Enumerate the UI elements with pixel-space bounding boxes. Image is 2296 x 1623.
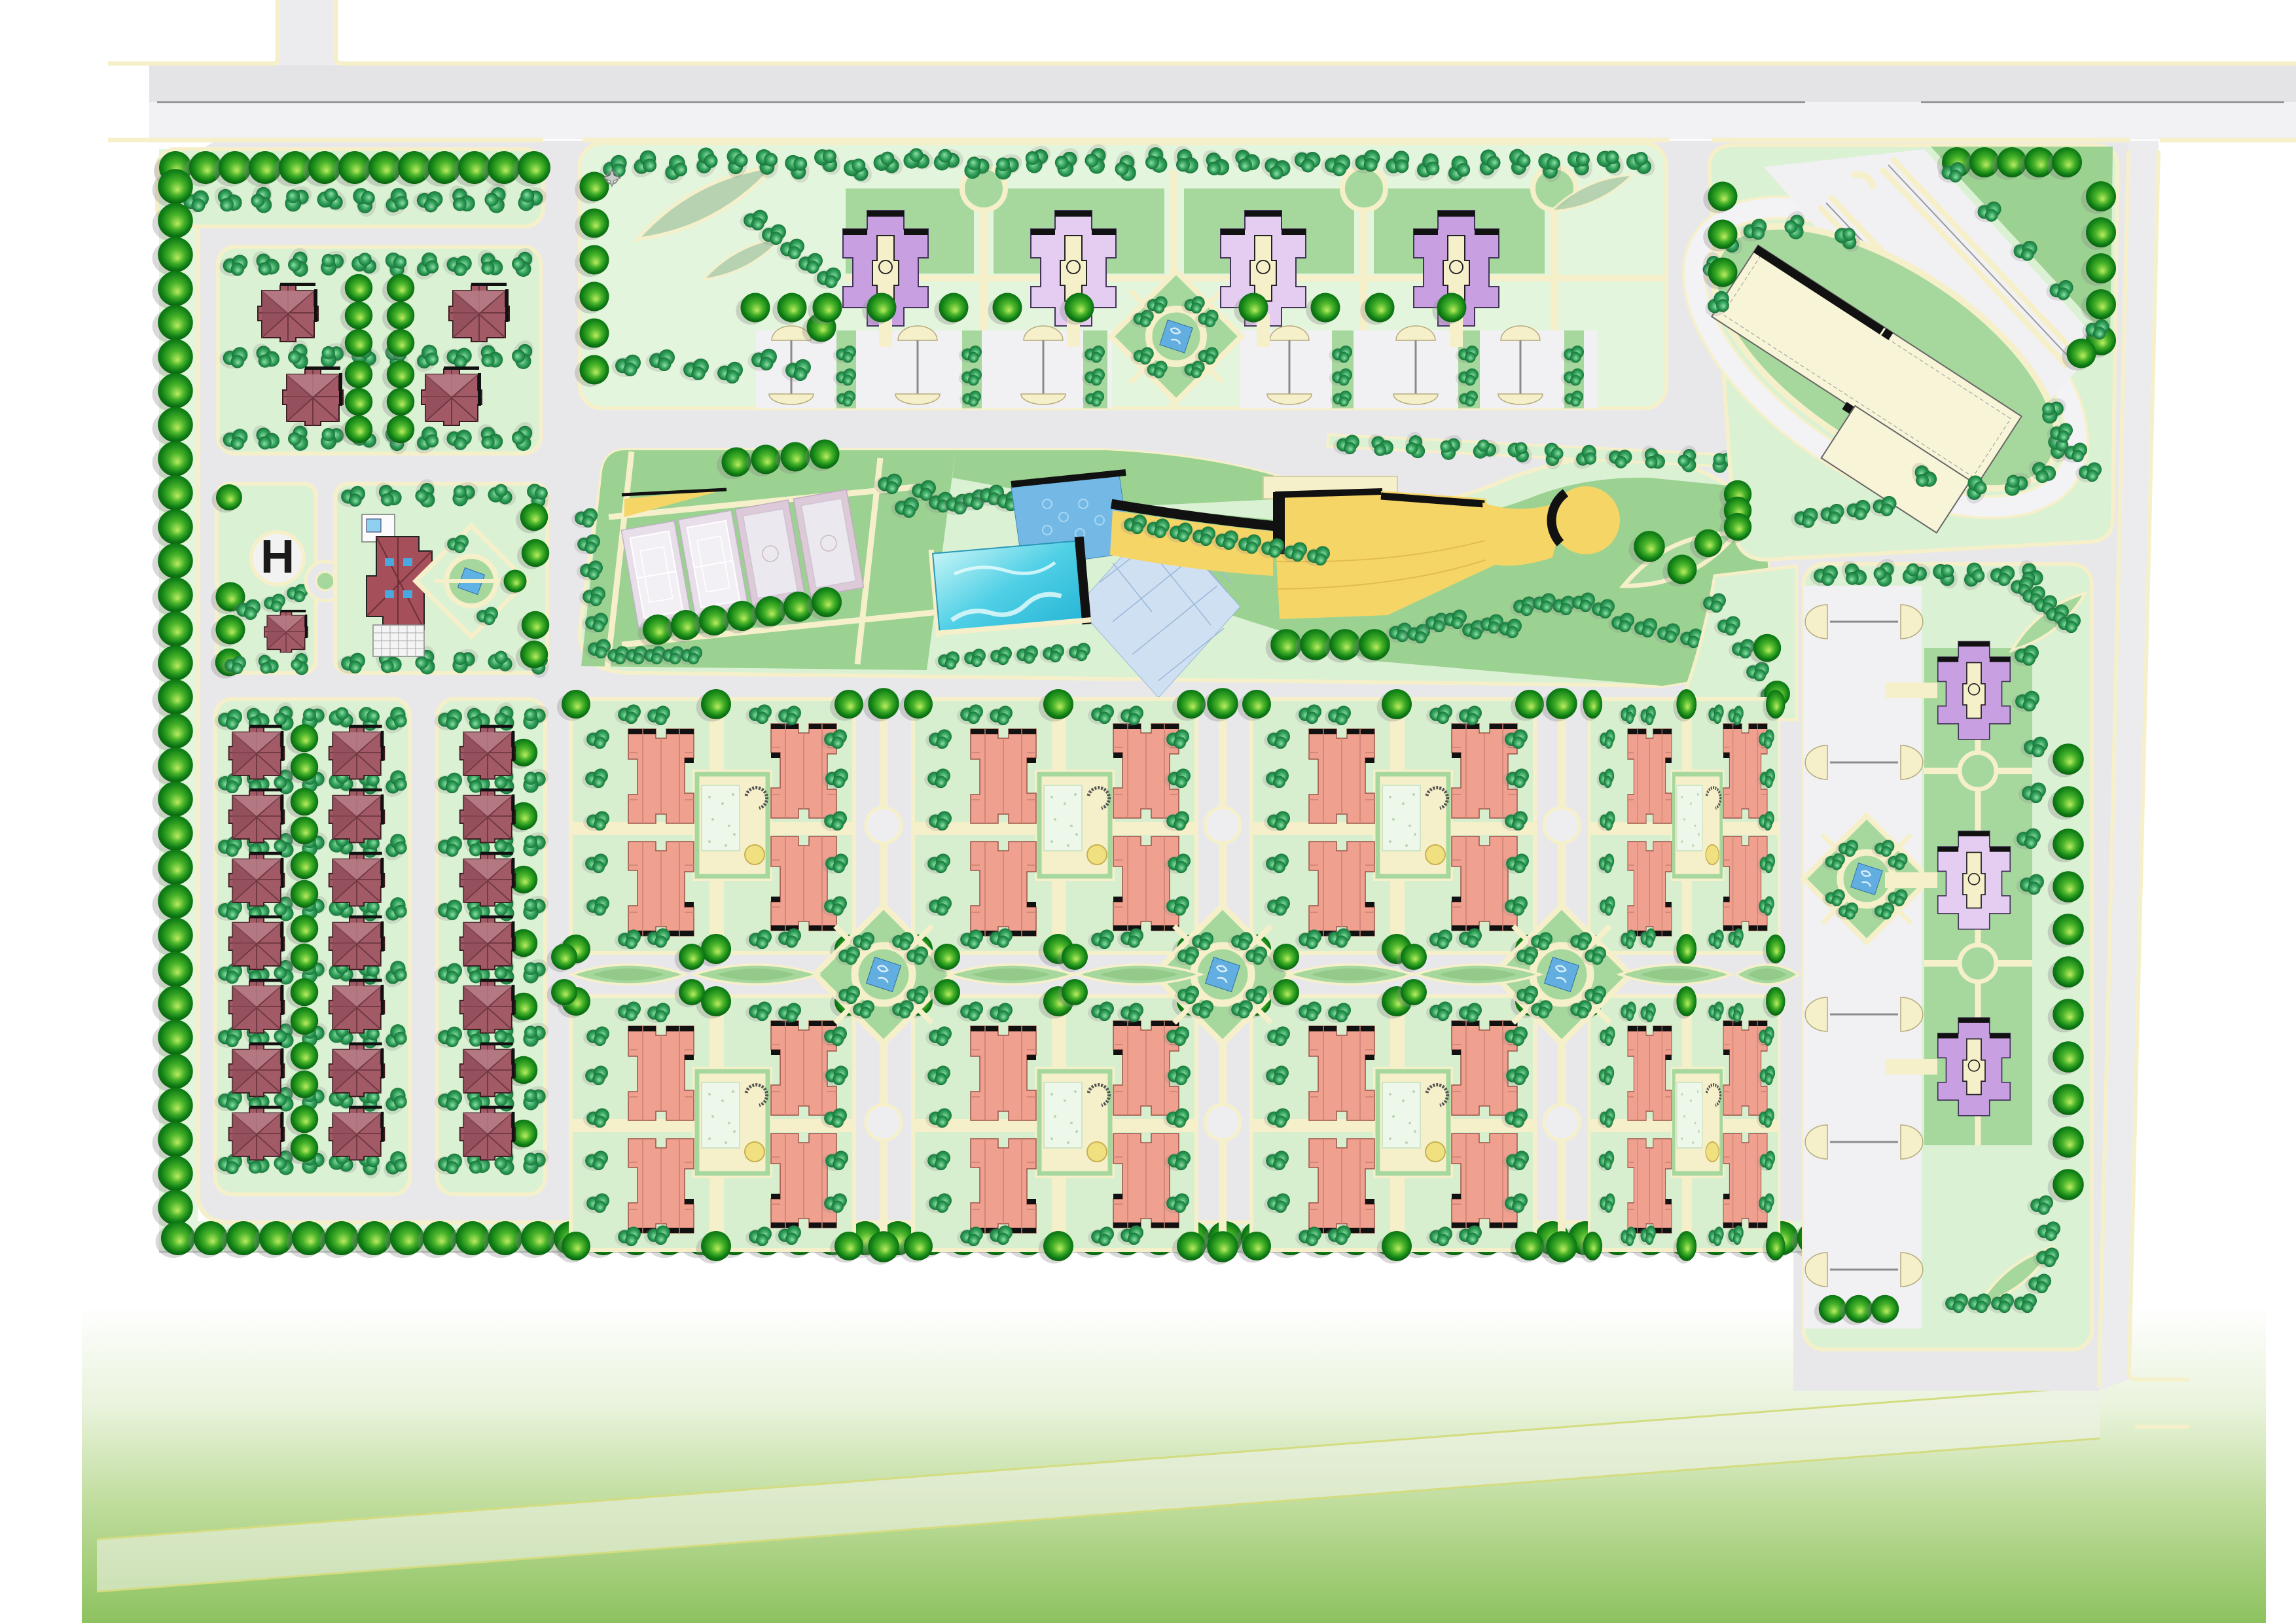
svg-text:H: H [260, 531, 295, 583]
